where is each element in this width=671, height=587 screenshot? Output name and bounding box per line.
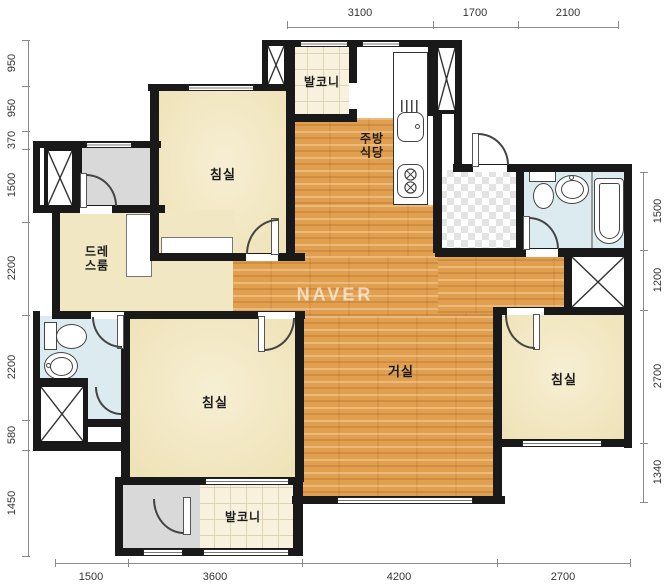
dimension-tick <box>22 450 30 451</box>
dimension-tick <box>302 559 303 567</box>
kitchen-label-line2: 식당 <box>360 146 384 160</box>
dimension-tick <box>497 559 498 567</box>
dimension-label: 580 <box>6 426 18 444</box>
shaft-x-box <box>44 147 76 209</box>
dimension-label: 950 <box>6 54 18 72</box>
shaft-x-box <box>264 42 288 88</box>
dimension-tick <box>55 559 56 567</box>
toilet-tank-right-icon <box>529 171 556 182</box>
wall <box>33 141 40 213</box>
dimension-line-right <box>643 172 644 502</box>
toilet-bowl-left-icon <box>56 324 87 349</box>
dimension-tick <box>22 222 30 223</box>
dimension-tick <box>618 21 619 29</box>
dimension-tick <box>640 443 648 444</box>
dimension-tick <box>518 21 519 29</box>
living-room-floor <box>301 316 497 499</box>
dimension-label: 3100 <box>348 7 372 19</box>
dressroom-label-line1: 드레 <box>85 245 109 259</box>
dimension-label: 370 <box>6 131 18 149</box>
living-room-floor-east <box>438 253 568 313</box>
naver-watermark: NAVER <box>297 285 374 306</box>
dimension-tick <box>287 21 288 29</box>
dimension-tick <box>22 420 30 421</box>
front-door-swing-arc <box>478 133 509 165</box>
wall <box>349 40 357 122</box>
dimension-label: 1500 <box>79 571 103 583</box>
shower-partition-line <box>591 172 593 249</box>
living-room-label: 거실 <box>388 364 414 380</box>
dimension-label: 1500 <box>6 173 18 197</box>
dressroom-label-line2: 스룸 <box>85 259 109 273</box>
bedroom-top-left-label: 침실 <box>210 167 236 183</box>
window <box>362 41 400 47</box>
sink-right-basin-icon <box>561 180 584 199</box>
bathtub-basin-icon <box>599 183 620 239</box>
dimension-label: 1450 <box>6 491 18 515</box>
window <box>203 549 289 556</box>
window <box>205 478 289 485</box>
dimension-tick <box>22 40 30 41</box>
dimension-tick <box>640 310 648 311</box>
sink-left-tap-icon <box>46 363 51 368</box>
dimension-tick <box>433 21 434 29</box>
dimension-tick <box>22 86 30 87</box>
floor-plan: 3100 1700 2100 950 950 370 1500 2200 220… <box>0 0 671 587</box>
wall <box>52 205 60 319</box>
dimension-label: 4200 <box>387 571 411 583</box>
dimension-tick <box>630 559 631 567</box>
dimension-tick <box>22 315 30 316</box>
dimension-label: 2200 <box>6 256 18 280</box>
dimension-line-top <box>287 27 618 28</box>
dimension-label: 2700 <box>551 571 575 583</box>
shaft-x-box <box>36 382 88 446</box>
kitchen-dining-label: 주방 식당 <box>360 132 384 161</box>
dimension-tick <box>22 556 30 557</box>
door-opening <box>349 83 357 109</box>
window <box>86 142 132 148</box>
wall <box>295 311 304 482</box>
stove-burners-icon <box>398 165 423 197</box>
sink-right-tap-icon <box>569 175 574 180</box>
window <box>300 41 348 47</box>
kitchen-label-line1: 주방 <box>360 132 384 146</box>
window <box>143 549 183 556</box>
wall <box>150 84 159 261</box>
sink-left-basin-icon <box>50 357 73 376</box>
window <box>337 497 473 504</box>
wall <box>82 419 126 427</box>
dimension-tick <box>22 131 30 132</box>
window <box>188 85 254 91</box>
entry-floor <box>440 170 518 252</box>
balcony-top-label: 발코니 <box>304 75 340 89</box>
dimension-tick <box>128 559 129 567</box>
wall <box>150 253 305 261</box>
dressroom-label: 드레 스룸 <box>85 245 109 274</box>
kitchen-faucet-icon <box>415 124 420 129</box>
dimension-label: 3600 <box>203 571 227 583</box>
dimension-label: 2700 <box>652 364 664 388</box>
stove-icon <box>397 164 424 198</box>
dimension-line-left <box>28 40 29 556</box>
dimension-tick <box>22 149 30 150</box>
dimension-label: 1700 <box>463 7 487 19</box>
dimension-label: 950 <box>6 99 18 117</box>
dish-rack-icon <box>401 100 421 112</box>
dimension-line-bottom <box>55 563 630 564</box>
dimension-label: 2100 <box>556 7 580 19</box>
window <box>522 440 602 447</box>
dimension-label: 2200 <box>6 355 18 379</box>
dressroom-closet <box>126 214 152 277</box>
bedroom-right-label: 침실 <box>551 372 577 388</box>
door-leaf <box>183 497 191 535</box>
wall <box>293 477 303 556</box>
shaft-x-box <box>434 44 459 114</box>
wall <box>433 113 442 253</box>
dimension-tick <box>640 250 648 251</box>
balcony-bottom-label: 발코니 <box>225 510 261 524</box>
wall <box>115 477 123 556</box>
dining-floor <box>292 205 435 261</box>
wall <box>287 114 355 122</box>
door-opening <box>246 254 278 261</box>
wall <box>493 307 502 504</box>
dimension-label: 1500 <box>652 199 664 223</box>
bedroom-bottom-left-label: 침실 <box>202 395 228 411</box>
toilet-bowl-right-icon <box>533 183 554 209</box>
dimension-tick <box>640 502 648 503</box>
dimension-label: 1200 <box>652 268 664 292</box>
dimension-label: 1340 <box>652 460 664 484</box>
door-opening <box>526 249 558 257</box>
dimension-tick <box>640 172 648 173</box>
shaft-x-box <box>567 252 629 312</box>
